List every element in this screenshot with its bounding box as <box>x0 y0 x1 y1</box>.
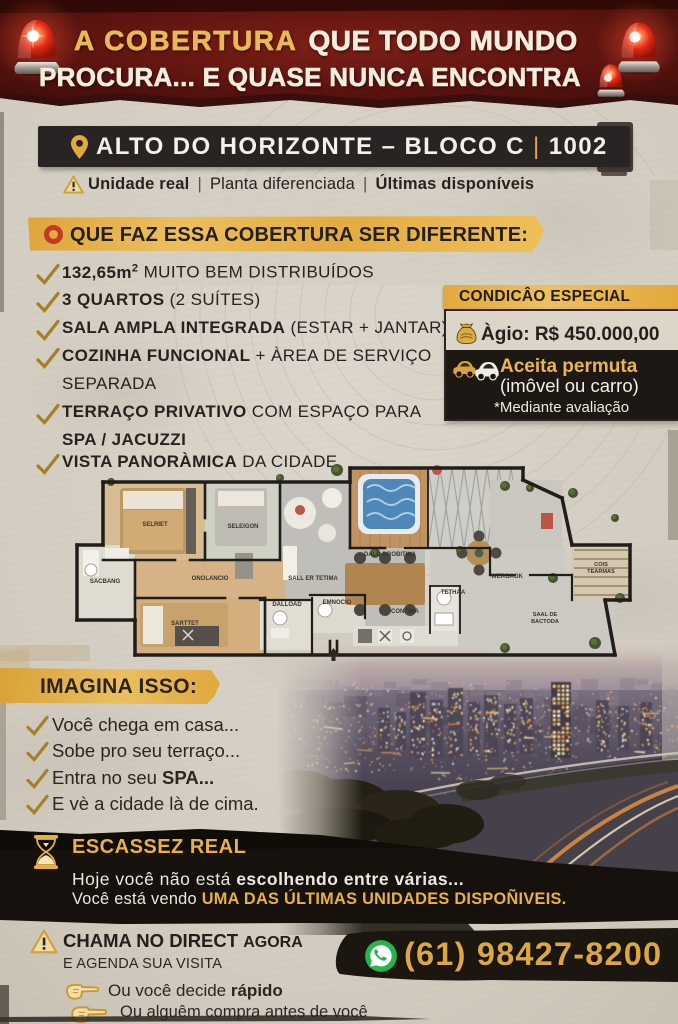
svg-text:DALO DROBITINA: DALO DROBITINA <box>364 552 417 558</box>
svg-text:SELEIGON: SELEIGON <box>227 524 258 530</box>
svg-text:BACTODA: BACTODA <box>531 619 559 625</box>
svg-text:SELRIET: SELRIET <box>142 522 168 528</box>
svg-text:SALL ER TETIMA: SALL ER TETIMA <box>288 576 338 582</box>
svg-text:TEARMAS: TEARMAS <box>587 569 615 575</box>
svg-text:SARTTET: SARTTET <box>171 621 199 627</box>
svg-text:TETHAA: TETHAA <box>441 590 466 596</box>
svg-text:SAAL DE: SAAL DE <box>533 612 558 618</box>
svg-text:EMNOCIO: EMNOCIO <box>323 600 352 606</box>
svg-text:DALLOAD: DALLOAD <box>272 602 302 608</box>
svg-text:WERGAOK: WERGAOK <box>491 574 524 580</box>
svg-text:SACBANG: SACBANG <box>90 579 121 585</box>
svg-text:ONOLANCIO: ONOLANCIO <box>192 576 229 582</box>
svg-text:CONTIMA: CONTIMA <box>391 609 420 615</box>
svg-text:COIS: COIS <box>594 562 608 568</box>
